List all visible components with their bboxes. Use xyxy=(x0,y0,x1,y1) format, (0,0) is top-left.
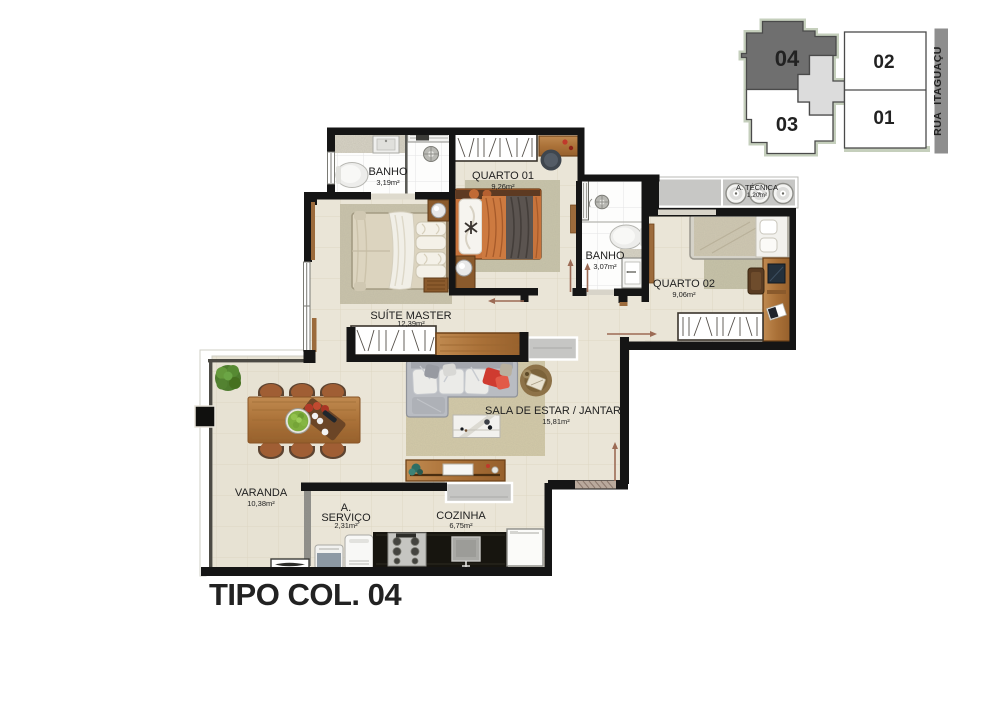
svg-text:02: 02 xyxy=(873,52,894,73)
svg-text:QUARTO 02: QUARTO 02 xyxy=(653,278,715,290)
svg-text:VARANDA: VARANDA xyxy=(235,487,288,499)
svg-text:15,81m²: 15,81m² xyxy=(542,417,570,426)
svg-text:9,06m²: 9,06m² xyxy=(672,290,696,299)
svg-text:2,31m²: 2,31m² xyxy=(334,521,358,530)
svg-text:BANHO: BANHO xyxy=(585,250,625,262)
svg-text:6,75m²: 6,75m² xyxy=(449,521,473,530)
svg-text:1,20m²: 1,20m² xyxy=(747,192,768,199)
svg-text:12,39m²: 12,39m² xyxy=(397,319,425,328)
svg-text:TIPO COL. 04: TIPO COL. 04 xyxy=(209,577,402,612)
svg-text:RUA ITAGUAÇU: RUA ITAGUAÇU xyxy=(932,46,944,136)
svg-text:04: 04 xyxy=(775,46,800,71)
svg-text:10,38m²: 10,38m² xyxy=(247,499,275,508)
svg-text:QUARTO 01: QUARTO 01 xyxy=(472,170,534,182)
svg-text:3,07m²: 3,07m² xyxy=(593,262,617,271)
svg-text:SALA DE ESTAR / JANTAR: SALA DE ESTAR / JANTAR xyxy=(485,405,621,417)
svg-text:01: 01 xyxy=(873,108,895,129)
svg-text:03: 03 xyxy=(776,114,798,136)
svg-text:BANHO: BANHO xyxy=(368,166,408,178)
svg-text:3,19m²: 3,19m² xyxy=(376,178,400,187)
svg-text:A. TÉCNICA: A. TÉCNICA xyxy=(736,183,778,192)
svg-text:9,26m²: 9,26m² xyxy=(491,182,515,191)
